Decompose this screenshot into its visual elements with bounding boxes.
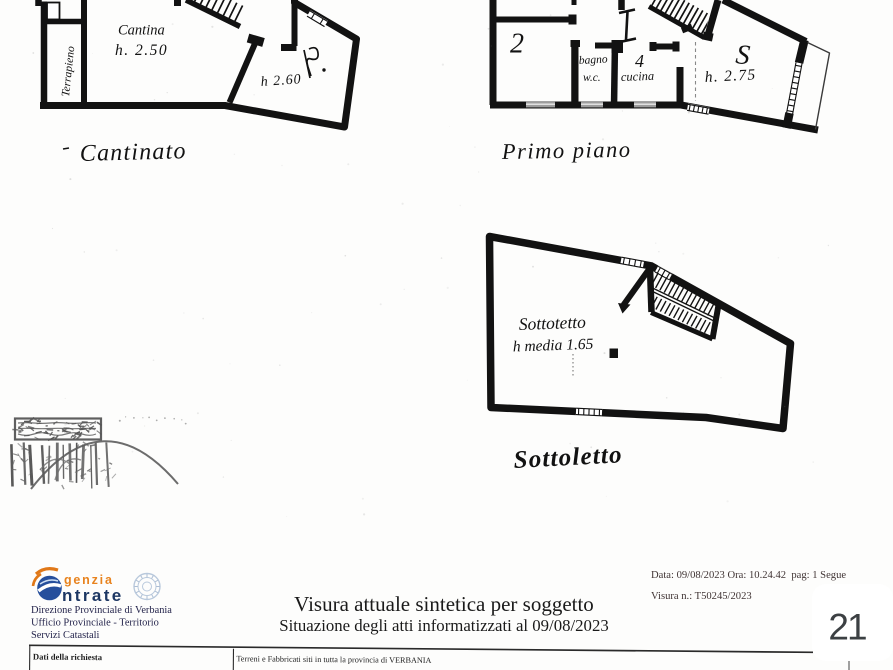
svg-text:Ufficio Provinciale - Territor: Ufficio Provinciale - Territorio: [31, 618, 159, 629]
svg-text:cucina: cucina: [621, 69, 655, 84]
svg-text:4: 4: [635, 51, 644, 71]
svg-text:genzia: genzia: [64, 573, 114, 587]
svg-text:Terreni e Fabbricati siti in t: Terreni e Fabbricati siti in tutta la pr…: [236, 654, 431, 665]
svg-text:Data: 09/08/2023 Ora: 10.24.42: Data: 09/08/2023 Ora: 10.24.42 pag: 1 Se…: [651, 570, 846, 581]
svg-text:bagno: bagno: [579, 53, 609, 67]
svg-text:w.c.: w.c.: [583, 72, 601, 84]
svg-text:Sottoletto: Sottoletto: [513, 441, 623, 474]
svg-text:h. 2.50: h. 2.50: [115, 42, 168, 59]
svg-text:Cantina: Cantina: [118, 23, 165, 39]
svg-text:21: 21: [828, 607, 866, 648]
svg-text:Visura attuale sintetica per s: Visura attuale sintetica per soggetto: [294, 592, 594, 616]
svg-text:h. 2.75: h. 2.75: [704, 66, 757, 86]
svg-text:Situazione degli atti informat: Situazione degli atti informatizzati al …: [279, 616, 608, 635]
svg-text:ntrate: ntrate: [62, 586, 124, 605]
svg-text:Dati della richiesta: Dati della richiesta: [33, 652, 103, 663]
svg-text:Direzione Provinciale di Verba: Direzione Provinciale di Verbania: [31, 605, 172, 616]
svg-text:h media 1.65: h media 1.65: [513, 336, 594, 356]
svg-text:2: 2: [510, 29, 524, 60]
svg-text:Visura n.: T50245/2023: Visura n.: T50245/2023: [651, 591, 752, 602]
svg-text:Cantinato: Cantinato: [79, 138, 186, 167]
svg-text:Sottotetto: Sottotetto: [518, 312, 586, 334]
svg-text:h 2.60: h 2.60: [260, 72, 302, 90]
svg-text:Primo piano: Primo piano: [501, 137, 632, 164]
svg-text:Servizi Catastali: Servizi Catastali: [31, 630, 99, 641]
